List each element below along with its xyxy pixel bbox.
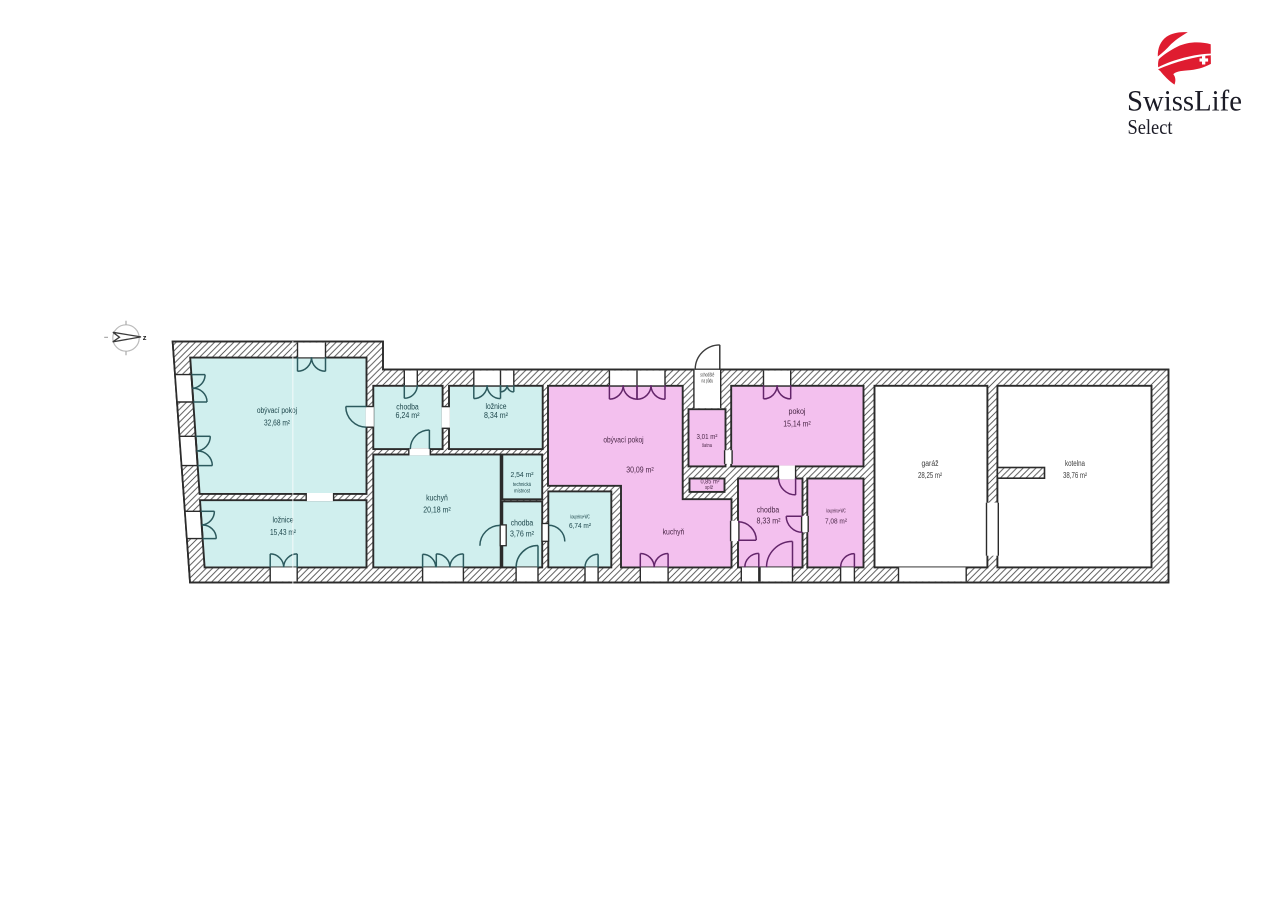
- svg-text:ložnice: ložnice: [486, 402, 507, 411]
- svg-text:obývací pokoj: obývací pokoj: [257, 406, 297, 415]
- svg-text:schodiště: schodiště: [700, 372, 714, 378]
- svg-text:6,24 m²: 6,24 m²: [395, 411, 419, 420]
- svg-text:šatna: šatna: [702, 443, 712, 449]
- svg-text:koupelna+WC: koupelna+WC: [570, 515, 590, 521]
- svg-text:3,76 m²: 3,76 m²: [510, 530, 534, 539]
- svg-text:obývací pokoj: obývací pokoj: [603, 436, 643, 445]
- svg-text:garáž: garáž: [922, 459, 939, 468]
- svg-text:2,54 m²: 2,54 m²: [511, 472, 535, 479]
- svg-text:3,01 m²: 3,01 m²: [697, 434, 719, 441]
- svg-text:7,08 m²: 7,08 m²: [825, 519, 848, 526]
- svg-text:spíž: spíž: [705, 485, 713, 491]
- svg-text:30,09 m²: 30,09 m²: [626, 466, 654, 475]
- svg-text:kuchyň: kuchyň: [426, 494, 448, 503]
- svg-text:32,68 m²: 32,68 m²: [264, 419, 290, 428]
- svg-text:na půdu: na půdu: [702, 378, 714, 385]
- svg-text:Select: Select: [1128, 115, 1173, 139]
- svg-text:chodba: chodba: [511, 519, 534, 528]
- svg-text:SwissLife: SwissLife: [1127, 85, 1242, 118]
- svg-text:koupelna+WC: koupelna+WC: [826, 509, 846, 515]
- svg-text:8,34 m²: 8,34 m²: [484, 411, 508, 420]
- svg-text:28,25 m²: 28,25 m²: [918, 471, 942, 480]
- svg-text:kuchyň: kuchyň: [663, 528, 685, 537]
- svg-text:kotelna: kotelna: [1065, 459, 1085, 468]
- svg-text:38,76 m²: 38,76 m²: [1063, 471, 1087, 480]
- svg-text:technická: technická: [513, 482, 531, 488]
- svg-text:z: z: [143, 333, 147, 342]
- svg-text:místnost: místnost: [514, 488, 531, 494]
- svg-text:pokoj: pokoj: [789, 407, 806, 416]
- svg-text:20,18 m²: 20,18 m²: [423, 506, 451, 515]
- svg-text:chodba: chodba: [757, 506, 780, 515]
- svg-text:6,74 m²: 6,74 m²: [569, 523, 592, 530]
- svg-text:8,33 m²: 8,33 m²: [757, 517, 781, 526]
- svg-text:ložnice: ložnice: [273, 516, 294, 525]
- svg-text:15,14 m²: 15,14 m²: [783, 420, 811, 429]
